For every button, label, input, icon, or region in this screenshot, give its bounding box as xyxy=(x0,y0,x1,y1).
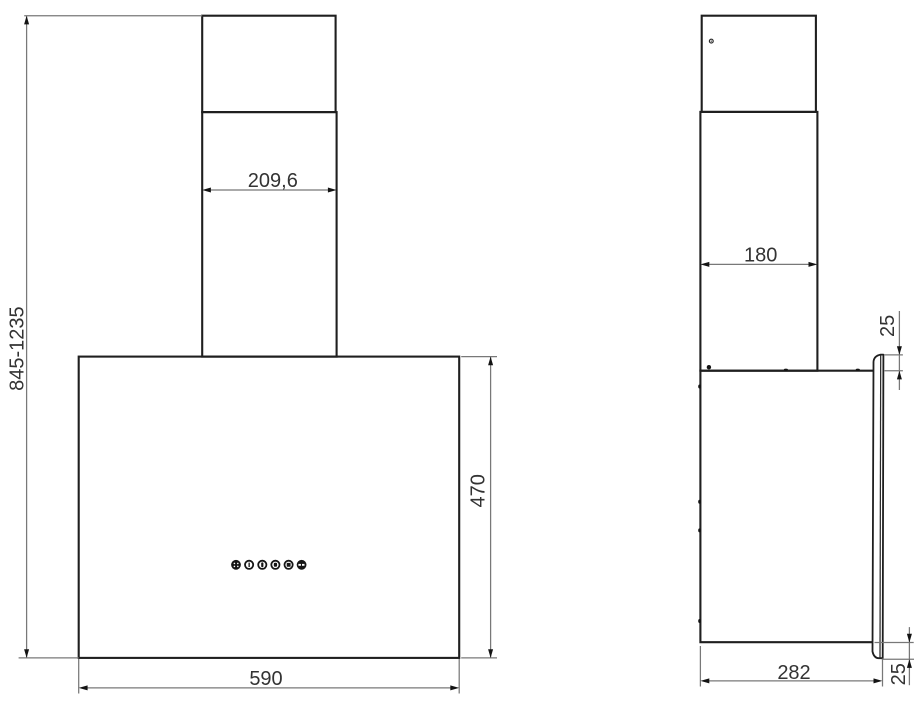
svg-text:470: 470 xyxy=(468,474,490,507)
svg-text:180: 180 xyxy=(744,245,777,267)
svg-text:209,6: 209,6 xyxy=(248,170,298,192)
svg-text:25: 25 xyxy=(877,315,899,337)
svg-text:282: 282 xyxy=(777,662,810,684)
svg-text:845-1235: 845-1235 xyxy=(7,306,29,391)
svg-text:590: 590 xyxy=(249,668,282,690)
svg-text:25: 25 xyxy=(888,663,910,685)
